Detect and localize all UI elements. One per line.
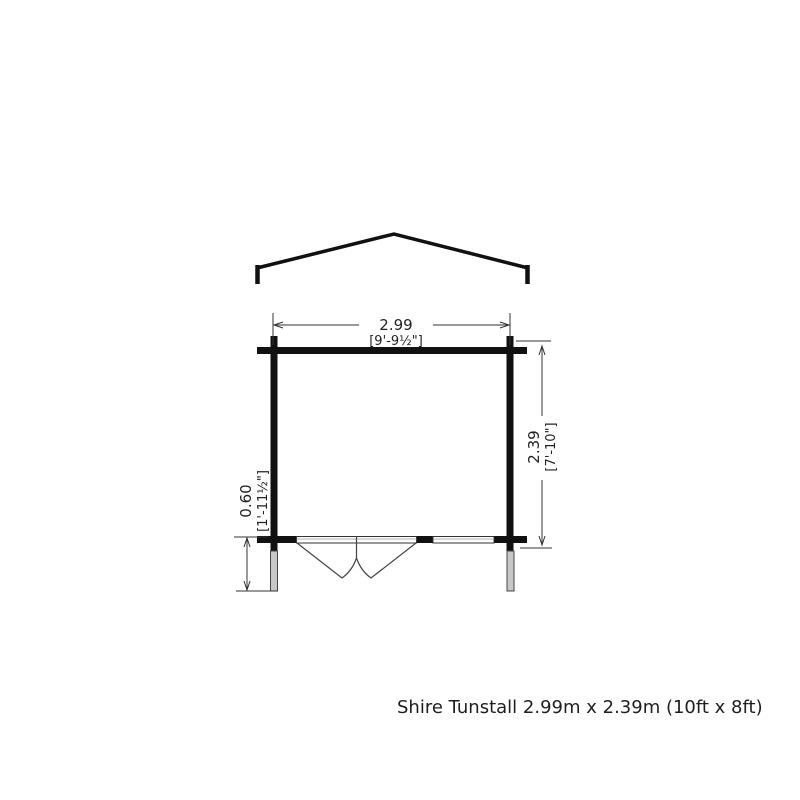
window	[433, 537, 494, 544]
canopy-imperial-label: [1'-11½"]	[256, 470, 271, 532]
door-swing-left	[297, 543, 357, 578]
left-post	[271, 551, 278, 591]
door-swing-right	[357, 543, 417, 578]
wall-plan	[257, 336, 527, 551]
width-imperial-label: [9'-9½"]	[369, 334, 423, 349]
roof-slope-lines	[257, 234, 528, 268]
right-post	[507, 551, 514, 591]
product-caption: Shire Tunstall 2.99m x 2.39m (10ft x 8ft…	[397, 697, 763, 718]
floor-plan-drawing: 2.99 [9'-9½"] 2.39 [7'-10"] 0.60	[0, 0, 800, 800]
depth-dimension: 2.39 [7'-10"]	[516, 341, 559, 548]
double-door	[297, 536, 417, 578]
diagram-page: 2.99 [9'-9½"] 2.39 [7'-10"] 0.60	[0, 0, 800, 800]
window-frame	[433, 537, 494, 544]
depth-imperial-label: [7'-10"]	[544, 422, 559, 471]
width-metric-label: 2.99	[379, 316, 412, 334]
canopy-metric-label: 0.60	[237, 484, 255, 517]
depth-metric-label: 2.39	[525, 430, 543, 463]
width-dimension: 2.99 [9'-9½"]	[273, 313, 510, 349]
roof-outline	[257, 234, 528, 284]
canopy-posts	[271, 551, 515, 591]
